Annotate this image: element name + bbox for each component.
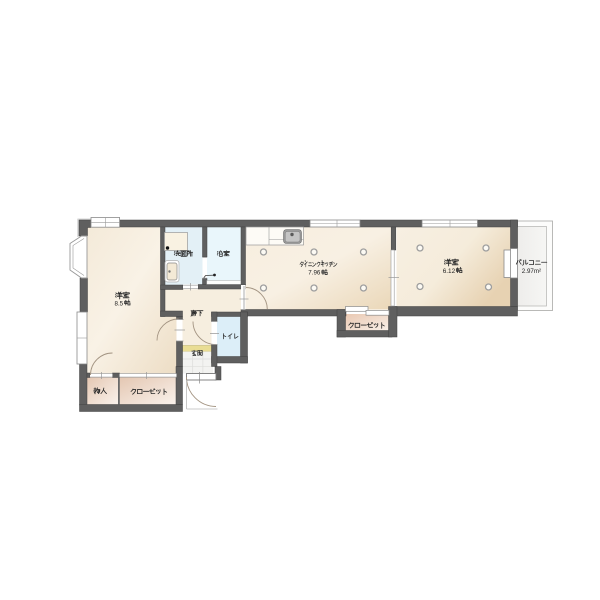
- svg-text:6.12: 6.12: [443, 268, 456, 275]
- svg-text:7.96: 7.96: [308, 270, 321, 277]
- svg-text:8.5: 8.5: [115, 300, 124, 307]
- svg-text:2.97m²: 2.97m²: [522, 268, 541, 275]
